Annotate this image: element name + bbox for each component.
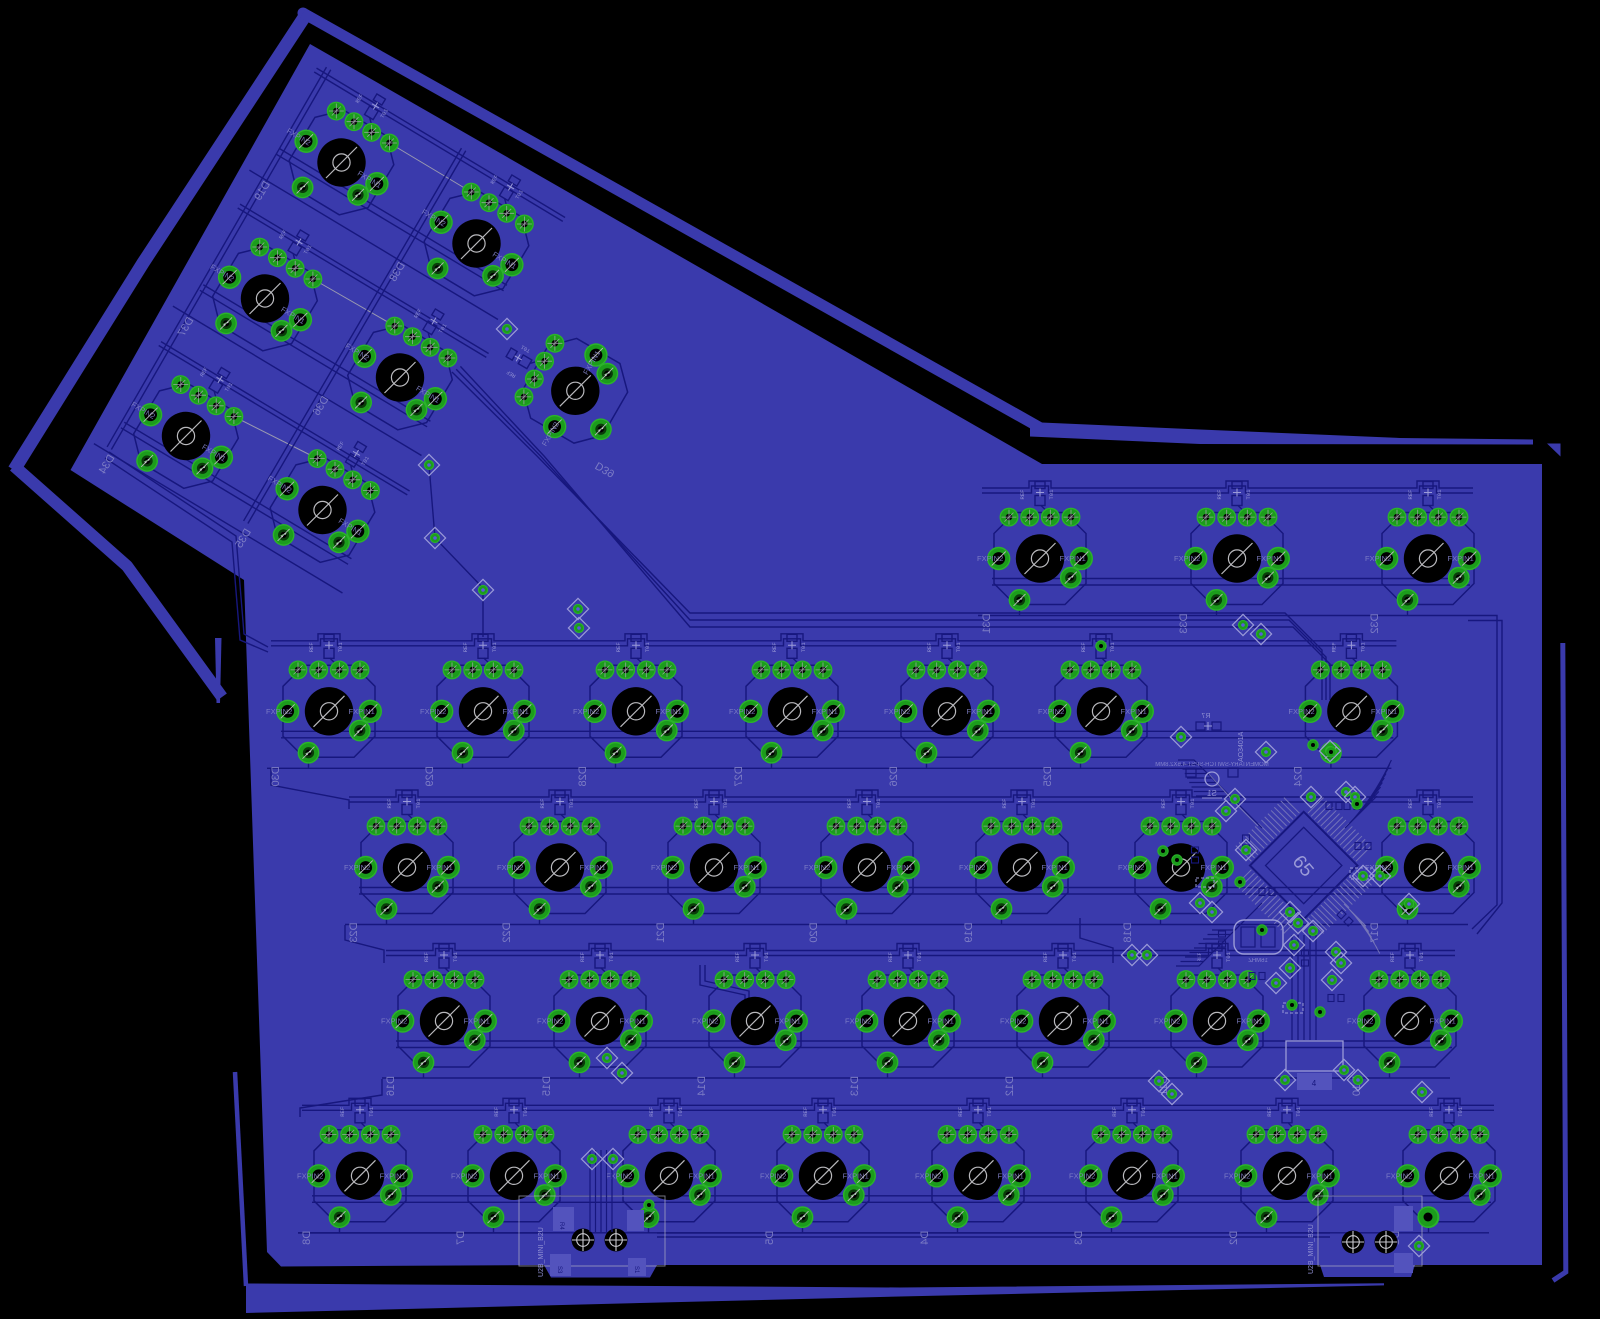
svg-text:D26: D26 — [888, 766, 900, 786]
svg-text:D2: D2 — [1228, 1231, 1240, 1245]
svg-text:D22: D22 — [501, 923, 513, 943]
svg-text:D31: D31 — [981, 614, 993, 634]
svg-text:U2B_MINI_B2U: U2B_MINI_B2U — [538, 1227, 545, 1277]
svg-text:D13: D13 — [849, 1076, 861, 1096]
svg-text:D19: D19 — [963, 923, 975, 943]
svg-text:16MHZ: 16MHZ — [1248, 958, 1268, 964]
svg-text:D21: D21 — [655, 923, 667, 943]
svg-text:R4: R4 — [558, 1222, 564, 1230]
svg-text:MOMENTARY-SWITCH-SPST-4.6X2.8M: MOMENTARY-SWITCH-SPST-4.6X2.8MM — [1155, 762, 1269, 768]
svg-text:S1: S1 — [633, 1266, 639, 1274]
svg-text:D29: D29 — [424, 766, 436, 786]
svg-text:D24: D24 — [1292, 766, 1304, 786]
svg-text:D30: D30 — [270, 766, 282, 786]
svg-text:4: 4 — [1312, 1079, 1317, 1088]
svg-text:D33: D33 — [1178, 614, 1190, 634]
svg-text:D16: D16 — [385, 1076, 397, 1096]
svg-text:D5: D5 — [764, 1231, 776, 1245]
svg-text:D15: D15 — [541, 1076, 553, 1096]
svg-text:D14: D14 — [696, 1076, 708, 1096]
svg-text:R7: R7 — [1201, 713, 1210, 720]
svg-text:D27: D27 — [733, 766, 745, 786]
svg-text:D3: D3 — [1073, 1231, 1085, 1245]
svg-text:D25: D25 — [1042, 766, 1054, 786]
svg-text:D7: D7 — [455, 1231, 467, 1245]
svg-text:S1: S1 — [1207, 789, 1217, 798]
svg-text:D17: D17 — [1369, 923, 1381, 943]
svg-text:D8: D8 — [301, 1231, 313, 1245]
svg-text:D32: D32 — [1369, 614, 1381, 634]
svg-text:U2B_MINI_B2U: U2B_MINI_B2U — [1308, 1224, 1315, 1274]
svg-text:D23: D23 — [348, 923, 360, 943]
svg-text:D28: D28 — [577, 766, 589, 786]
svg-text:D12: D12 — [1004, 1076, 1016, 1096]
svg-text:D4: D4 — [919, 1231, 931, 1245]
svg-text:AO3401A: AO3401A — [1238, 731, 1245, 762]
svg-text:S3: S3 — [556, 1266, 562, 1274]
svg-text:D20: D20 — [808, 923, 820, 943]
svg-text:D18: D18 — [1122, 923, 1134, 943]
